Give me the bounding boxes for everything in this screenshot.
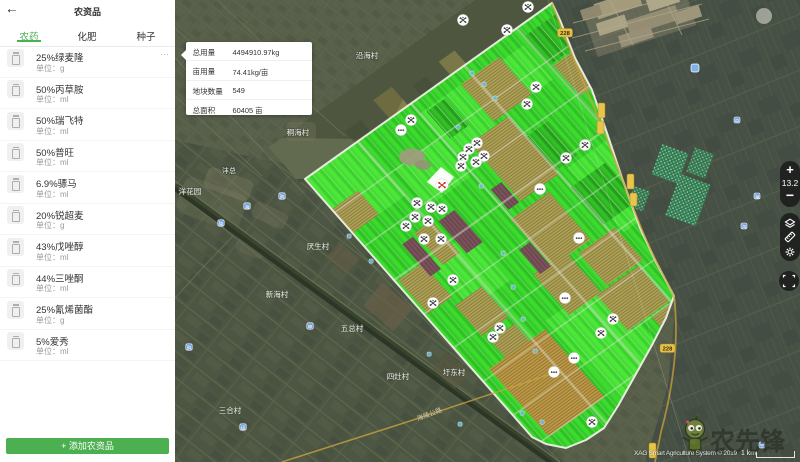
svg-text:陵: 陵: [219, 221, 224, 228]
svg-text:新海村: 新海村: [266, 289, 289, 299]
svg-text:厌生村: 厌生村: [307, 241, 330, 251]
svg-text:沟: 沟: [742, 224, 747, 231]
svg-text:鸦: 鸦: [280, 194, 285, 201]
svg-text:海: 海: [245, 204, 250, 211]
svg-text:鸦: 鸦: [187, 345, 192, 352]
svg-text:级: 级: [241, 425, 246, 432]
svg-text:洋花园: 洋花园: [179, 186, 202, 196]
svg-text:中: 中: [735, 118, 740, 125]
svg-text:海: 海: [755, 194, 760, 201]
svg-text:申: 申: [308, 324, 313, 331]
svg-text:三合村: 三合村: [219, 405, 242, 415]
svg-text:228: 228: [663, 347, 673, 353]
svg-text:圩东村: 圩东村: [443, 367, 466, 377]
svg-text:228: 228: [560, 31, 570, 37]
svg-text:四灶村: 四灶村: [387, 371, 410, 381]
svg-text:沿海村: 沿海村: [356, 50, 379, 60]
svg-text:五总村: 五总村: [341, 323, 364, 333]
svg-text:沣总: 沣总: [222, 166, 236, 175]
svg-text:秱海村: 秱海村: [287, 127, 310, 137]
